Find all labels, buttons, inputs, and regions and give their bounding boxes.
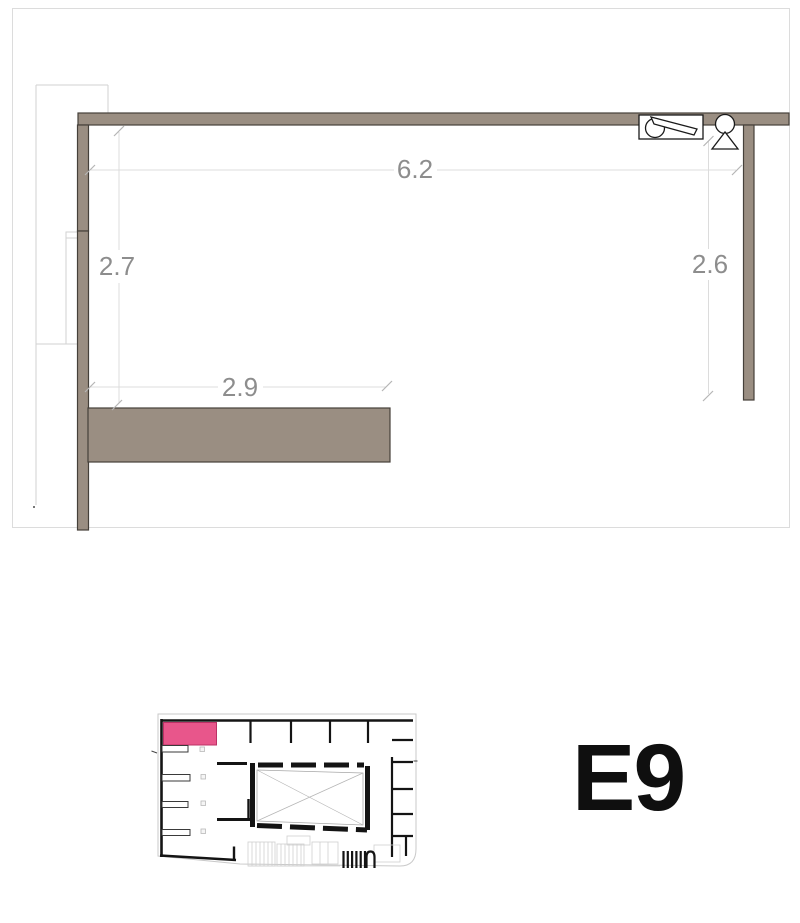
building-core	[253, 763, 368, 830]
dimension-top-label: 6.2	[397, 154, 433, 184]
entrance-ticks	[152, 751, 418, 761]
valve-fixture-icon	[712, 115, 738, 150]
wall-fixtures	[639, 115, 738, 150]
dimension-bottom-label: 2.9	[222, 372, 258, 402]
core-cross-icon	[257, 770, 363, 825]
wall-left-lower	[78, 231, 89, 530]
left-partition-bars	[162, 746, 190, 836]
column-markers	[200, 747, 206, 834]
floor-plan-page: 6.2 2.7 2.6 2.9	[0, 0, 800, 923]
dimension-left-label: 2.7	[99, 251, 135, 281]
stair-outlines	[248, 836, 400, 866]
wall-right	[744, 125, 755, 400]
room-plan-drawing: 6.2 2.7 2.6 2.9	[0, 0, 800, 600]
building-locator-minimap	[148, 706, 427, 880]
plan-artifact-dot	[33, 506, 35, 508]
door-fixture-icon	[639, 115, 703, 139]
highlighted-room	[164, 723, 217, 746]
wall-bottom-block	[88, 408, 390, 462]
window-symbol	[66, 232, 78, 344]
dimension-right-label: 2.6	[692, 249, 728, 279]
walls	[78, 113, 790, 530]
unit-label: E9	[572, 731, 732, 841]
wall-left-upper	[78, 125, 89, 231]
